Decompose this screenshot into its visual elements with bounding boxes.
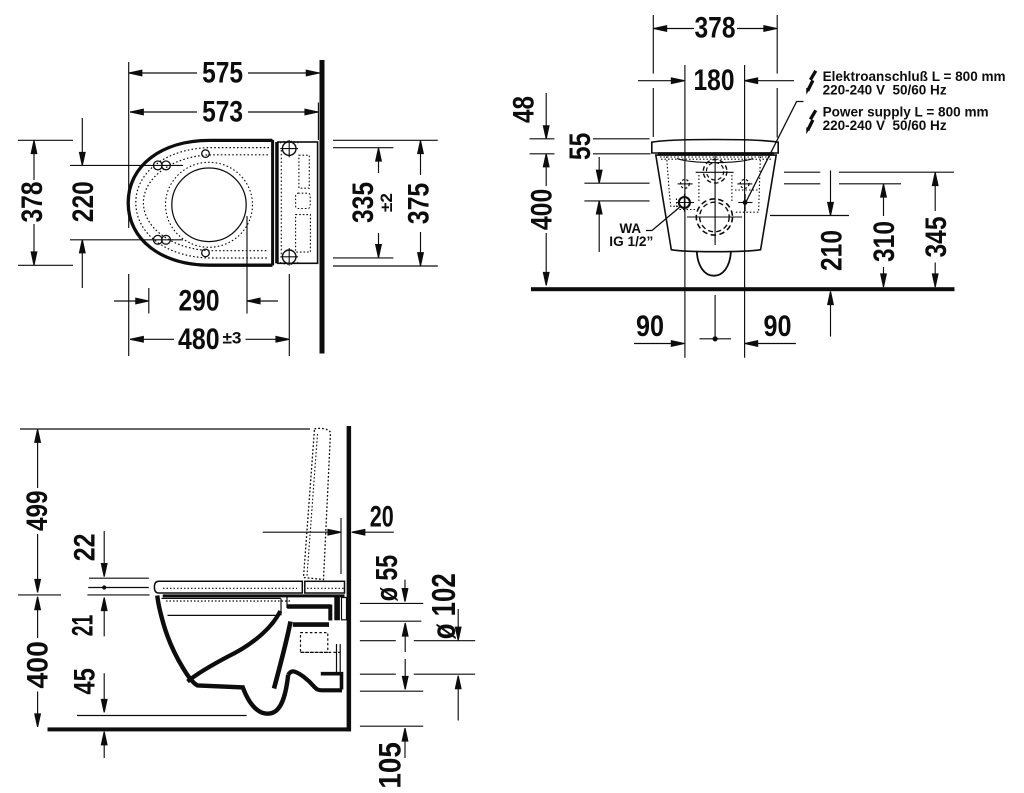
svg-text:310: 310 [868,221,901,262]
svg-text:Power supply L = 800 mm: Power supply L = 800 mm [823,104,989,119]
svg-text:20: 20 [370,501,394,534]
svg-text:575: 575 [202,57,243,90]
svg-text:378: 378 [16,182,49,223]
svg-text:22: 22 [68,534,101,562]
svg-text:105: 105 [372,742,408,788]
svg-text:573: 573 [202,96,243,129]
svg-text:499: 499 [21,491,54,532]
svg-text:375: 375 [402,183,435,225]
svg-text:400: 400 [526,189,559,231]
svg-text:45: 45 [68,668,101,695]
svg-text:55: 55 [564,133,597,161]
svg-text:210: 210 [815,230,848,271]
svg-text:±2: ±2 [378,193,396,212]
svg-text:±3: ±3 [223,330,242,348]
svg-text:290: 290 [179,285,220,318]
svg-text:480: 480 [178,323,220,356]
svg-text:378: 378 [695,12,736,45]
svg-text:ø 55: ø 55 [369,555,404,601]
svg-text:180: 180 [694,64,735,97]
svg-text:345: 345 [920,217,953,258]
svg-text:48: 48 [508,96,541,123]
svg-text:IG 1/2”: IG 1/2” [609,234,653,249]
svg-text:90: 90 [764,310,792,343]
svg-text:90: 90 [636,310,664,343]
svg-text:400: 400 [22,641,55,689]
svg-text:220-240 V 50/60 Hz: 220-240 V 50/60 Hz [823,83,947,98]
svg-text:Elektroanschluß L = 800 mm: Elektroanschluß L = 800 mm [823,69,1006,84]
svg-text:21: 21 [66,615,99,637]
svg-text:220: 220 [67,181,100,222]
svg-text:335: 335 [347,182,380,223]
svg-text:220-240 V 50/60 Hz: 220-240 V 50/60 Hz [823,118,947,133]
